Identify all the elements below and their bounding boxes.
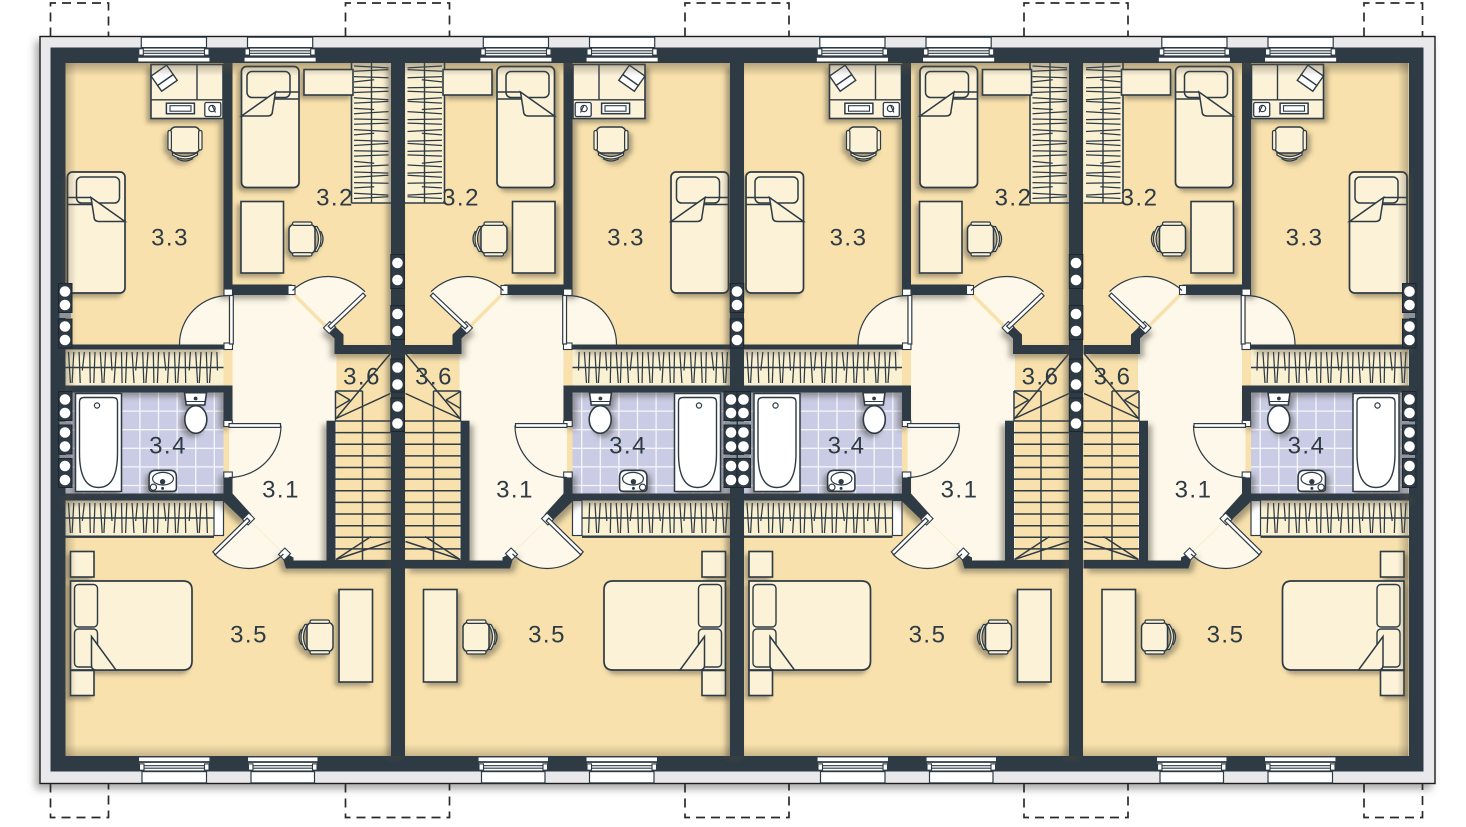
svg-text:3.6: 3.6 <box>415 364 453 391</box>
svg-text:3.2: 3.2 <box>1121 185 1159 212</box>
svg-text:3.5: 3.5 <box>528 622 566 649</box>
svg-text:3.4: 3.4 <box>828 433 866 460</box>
svg-text:3.3: 3.3 <box>830 225 868 252</box>
svg-text:3.4: 3.4 <box>609 433 647 460</box>
svg-text:3.3: 3.3 <box>607 225 645 252</box>
svg-text:3.3: 3.3 <box>151 225 189 252</box>
svg-text:3.2: 3.2 <box>316 185 354 212</box>
svg-text:3.1: 3.1 <box>262 477 300 504</box>
svg-text:3.5: 3.5 <box>909 622 947 649</box>
svg-text:3.5: 3.5 <box>1207 622 1245 649</box>
svg-text:3.6: 3.6 <box>343 364 381 391</box>
svg-text:3.1: 3.1 <box>941 477 979 504</box>
svg-text:3.3: 3.3 <box>1286 225 1324 252</box>
svg-text:3.6: 3.6 <box>1094 364 1132 391</box>
svg-text:3.4: 3.4 <box>149 433 187 460</box>
svg-text:3.6: 3.6 <box>1022 364 1060 391</box>
svg-text:3.1: 3.1 <box>496 477 534 504</box>
svg-text:3.2: 3.2 <box>442 185 480 212</box>
svg-text:3.4: 3.4 <box>1288 433 1326 460</box>
svg-text:3.1: 3.1 <box>1175 477 1213 504</box>
svg-text:3.5: 3.5 <box>230 622 268 649</box>
svg-text:3.2: 3.2 <box>995 185 1033 212</box>
